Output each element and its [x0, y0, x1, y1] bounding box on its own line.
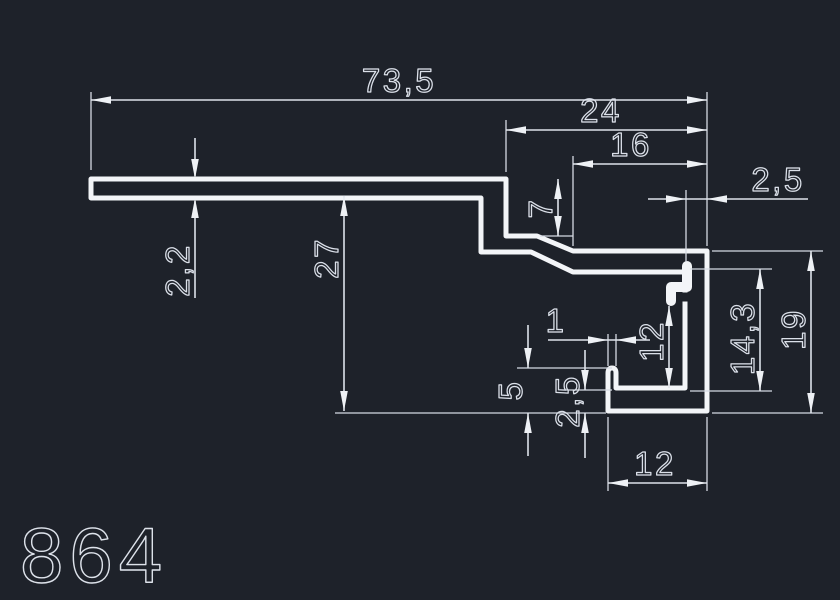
dim-channel-height: 14,3 — [724, 269, 764, 391]
dim-right-height: 19 — [775, 251, 815, 413]
wall-groove-notch — [678, 293, 691, 302]
dim-body-height: 27 — [308, 196, 348, 411]
dim-label-body-height: 27 — [308, 237, 345, 279]
dim-label-flange-thickness: 2,2 — [159, 243, 196, 296]
dim-label-bottom-thickness: 2,5 — [549, 374, 586, 427]
dim-wall-thickness: 2,5 — [648, 161, 808, 203]
dim-label-right-section-width: 24 — [580, 92, 622, 129]
dim-label-right-height: 19 — [775, 308, 812, 350]
dim-step-depth: 7 — [522, 179, 562, 236]
dim-lip-height: 5 — [492, 325, 532, 456]
dim-label-lip-thickness: 1 — [546, 302, 567, 339]
part-number: 864 — [20, 511, 168, 599]
dim-flange-thickness: 2,2 — [159, 138, 199, 298]
dim-label-channel-height: 14,3 — [724, 301, 761, 375]
dim-label-top-face-width: 16 — [610, 126, 652, 163]
dim-label-bottom-width: 12 — [634, 445, 676, 482]
profile-drawing: 73,5 24 16 2,5 7 2,2 — [0, 0, 840, 600]
dim-right-section-width: 24 — [506, 92, 707, 134]
dim-bottom-thickness: 2,5 — [549, 350, 589, 458]
dim-channel-inner-height: 12 — [633, 306, 673, 388]
dim-label-step-depth: 7 — [522, 198, 559, 219]
dim-label-overall-width: 73,5 — [362, 62, 436, 99]
dim-label-lip-height: 5 — [492, 380, 529, 401]
extension-lines — [91, 92, 823, 491]
cad-drawing-canvas: 73,5 24 16 2,5 7 2,2 — [0, 0, 840, 600]
dim-label-wall-thickness: 2,5 — [751, 161, 804, 198]
dim-top-face-width: 16 — [573, 126, 707, 168]
dim-label-channel-inner-height: 12 — [633, 320, 670, 362]
dim-bottom-width: 12 — [608, 445, 707, 487]
